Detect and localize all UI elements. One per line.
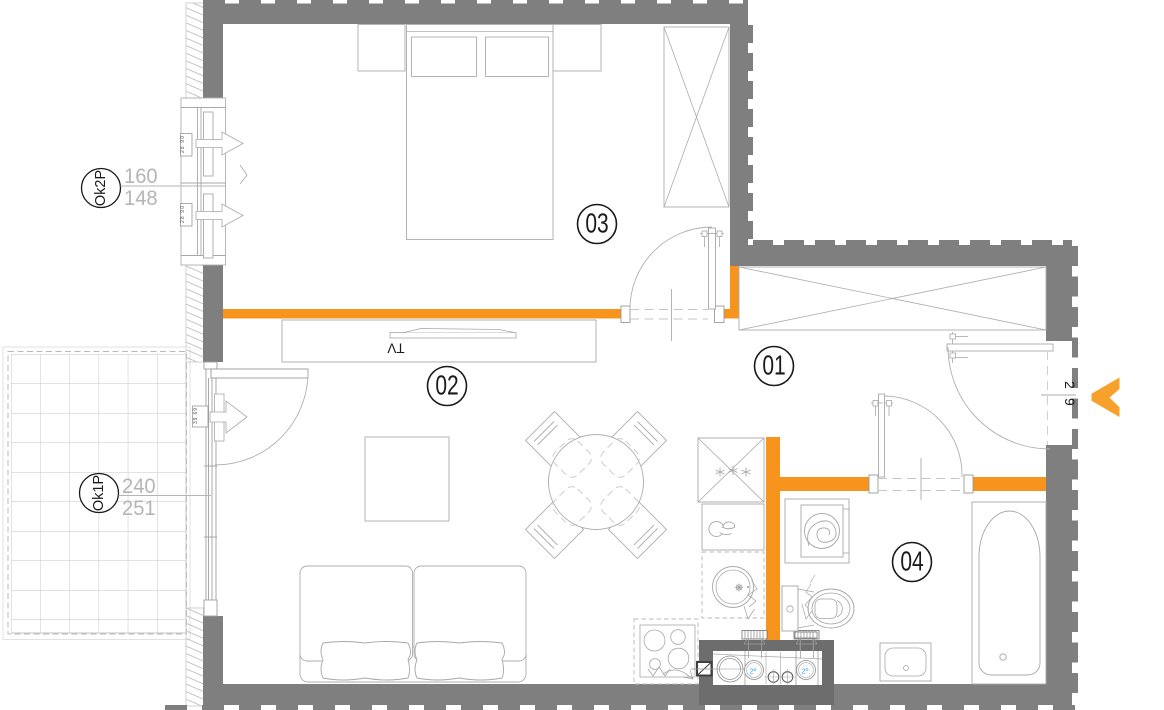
svg-text:Ok2P: Ok2P (93, 170, 109, 206)
svg-text:28 90: 28 90 (180, 206, 186, 223)
svg-text:9: 9 (1062, 398, 1078, 406)
svg-text:03: 03 (585, 209, 608, 240)
svg-text:02: 02 (435, 371, 458, 402)
svg-text:160: 160 (124, 165, 158, 188)
svg-text:2º: 2º (750, 667, 757, 676)
svg-text:28 90: 28 90 (180, 136, 186, 153)
svg-text:TV: TV (387, 341, 404, 356)
svg-text:240: 240 (122, 475, 156, 498)
svg-text:251: 251 (122, 497, 156, 520)
svg-text:2º: 2º (802, 667, 809, 676)
svg-text:Ok1P: Ok1P (91, 475, 107, 511)
svg-text:148: 148 (124, 187, 158, 210)
svg-text:2: 2 (1062, 381, 1078, 389)
svg-text:01: 01 (762, 351, 785, 382)
svg-text:39 69: 39 69 (193, 408, 199, 424)
svg-text:04: 04 (900, 547, 924, 578)
